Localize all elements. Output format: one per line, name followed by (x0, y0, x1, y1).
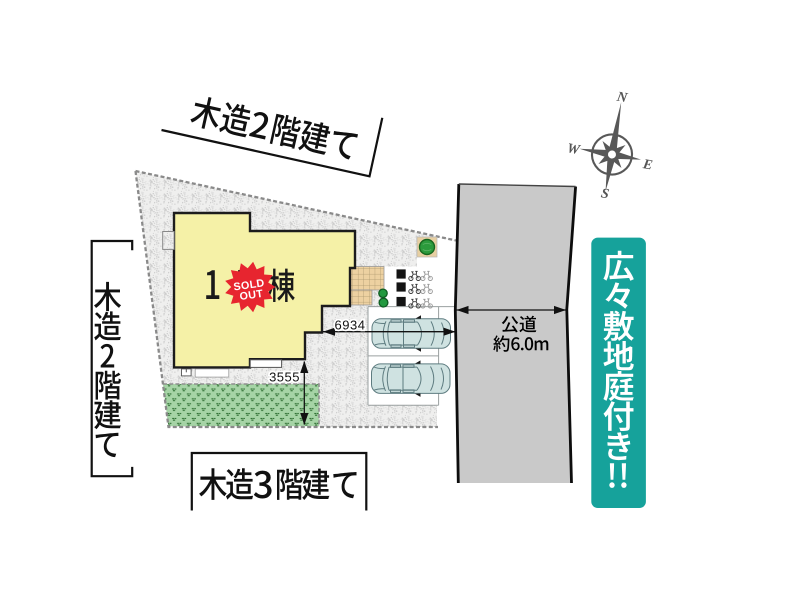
svg-text:3555: 3555 (269, 370, 300, 385)
svg-text:6934: 6934 (335, 317, 366, 332)
